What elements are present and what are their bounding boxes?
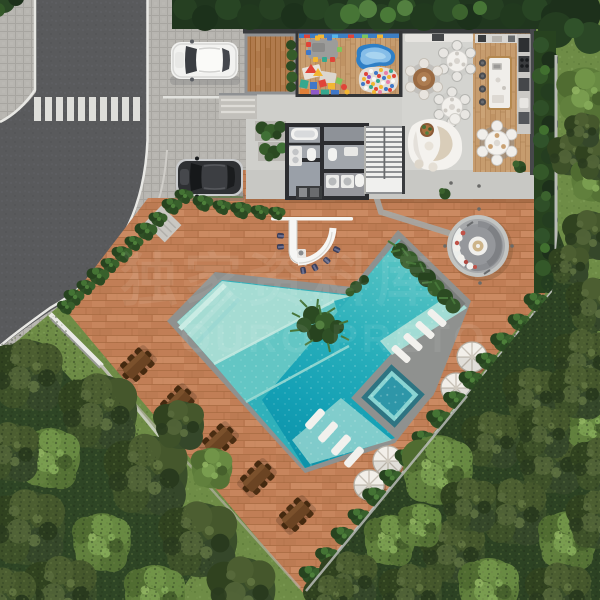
svg-text:独家资料库: 独家资料库 xyxy=(120,248,440,313)
svg-text:OURO PRETO: OURO PRETO xyxy=(180,317,488,361)
